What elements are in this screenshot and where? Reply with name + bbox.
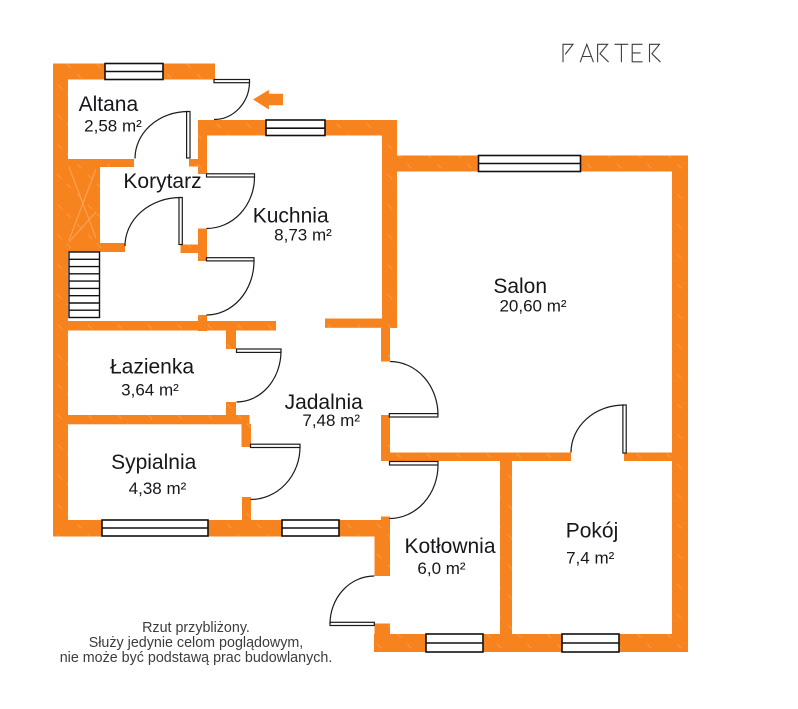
svg-text:Korytarz: Korytarz	[123, 170, 201, 193]
svg-text:3,64 m²: 3,64 m²	[121, 381, 179, 400]
svg-text:Sypialnia: Sypialnia	[111, 451, 197, 474]
svg-text:Altana: Altana	[79, 93, 139, 116]
svg-text:4,38 m²: 4,38 m²	[129, 479, 187, 498]
svg-text:Łazienka: Łazienka	[110, 356, 194, 379]
svg-text:20,60 m²: 20,60 m²	[499, 297, 566, 316]
svg-text:Kuchnia: Kuchnia	[253, 205, 329, 228]
svg-text:6,0 m²: 6,0 m²	[417, 559, 466, 578]
svg-text:Rzut przybliżony.: Rzut przybliżony.	[142, 620, 250, 636]
svg-text:nie może być podstawą prac bud: nie może być podstawą prac budowlanych.	[60, 650, 333, 666]
svg-text:Pokój: Pokój	[566, 520, 619, 543]
svg-text:2,58 m²: 2,58 m²	[84, 117, 142, 136]
svg-text:7,4 m²: 7,4 m²	[566, 549, 615, 568]
svg-text:Salon: Salon	[493, 275, 547, 298]
svg-text:7,48 m²: 7,48 m²	[302, 411, 360, 430]
svg-text:Służy jedynie celom poglądowym: Służy jedynie celom poglądowym,	[89, 635, 304, 651]
svg-text:Kotłownia: Kotłownia	[404, 535, 495, 558]
svg-text:8,73 m²: 8,73 m²	[274, 226, 332, 245]
